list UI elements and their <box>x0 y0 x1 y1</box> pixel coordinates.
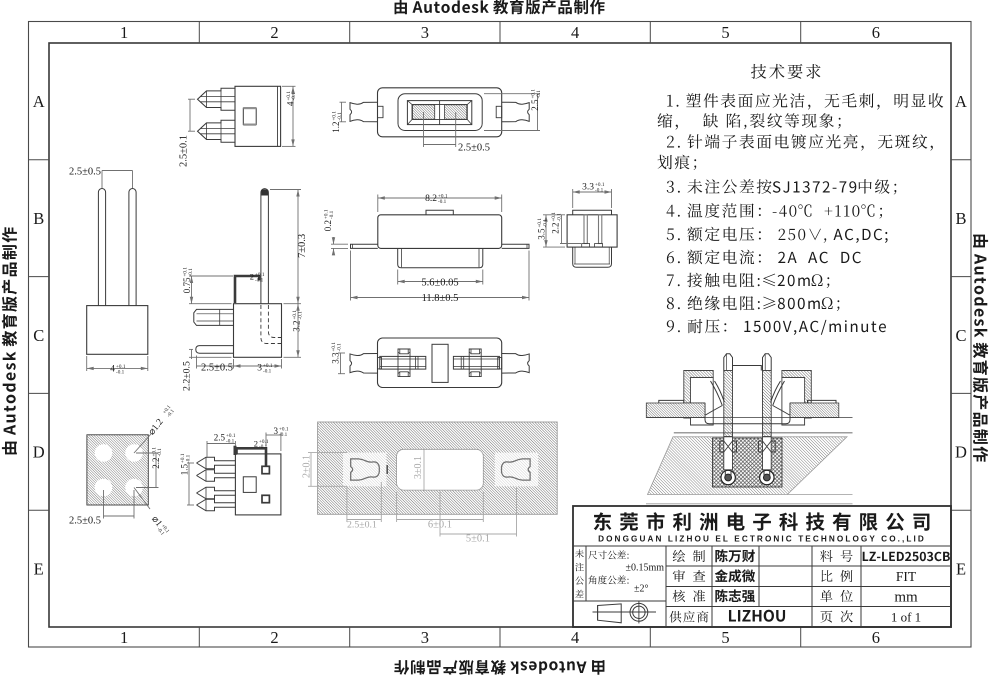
svg-text:B: B <box>955 209 966 228</box>
svg-text:1: 1 <box>120 23 128 42</box>
svg-text:mm: mm <box>894 590 918 606</box>
svg-text:3.2: 3.2 <box>292 321 302 332</box>
svg-text:4: 4 <box>285 101 295 106</box>
svg-text:-0.1: -0.1 <box>297 311 303 320</box>
svg-text:3: 3 <box>274 426 279 436</box>
svg-text:B: B <box>33 209 44 228</box>
svg-text:2±0.1: 2±0.1 <box>302 455 313 478</box>
svg-text:-0.1: -0.1 <box>556 213 562 222</box>
svg-text:1.5: 1.5 <box>180 464 190 476</box>
svg-text:DONGGUAN LIZHOU EL ECTRONIC TE: DONGGUAN LIZHOU EL ECTRONIC TECHNOLOGY C… <box>598 535 926 544</box>
svg-text:-0.1: -0.1 <box>291 92 297 101</box>
svg-text:1: 1 <box>120 628 128 647</box>
svg-text:3: 3 <box>421 23 429 42</box>
svg-text:-0.1: -0.1 <box>595 187 604 193</box>
svg-text:2.5±0.5: 2.5±0.5 <box>201 363 233 374</box>
svg-text:-0.1: -0.1 <box>542 219 548 228</box>
svg-text:2.5±0.5: 2.5±0.5 <box>458 143 490 154</box>
svg-text:5: 5 <box>721 628 729 647</box>
svg-text:D: D <box>33 443 45 462</box>
svg-text:A: A <box>955 92 967 111</box>
svg-text:-0.1: -0.1 <box>329 210 335 219</box>
svg-text:2.5±0.1: 2.5±0.1 <box>347 520 377 531</box>
svg-text:2.2: 2.2 <box>151 458 161 469</box>
svg-text:-0.1: -0.1 <box>116 369 125 375</box>
svg-text:-0.1: -0.1 <box>536 90 542 99</box>
svg-text:3: 3 <box>257 364 262 374</box>
svg-text:-0.1: -0.1 <box>255 277 264 283</box>
svg-text:2.5±0.5: 2.5±0.5 <box>69 167 101 178</box>
svg-text:7±0.3: 7±0.3 <box>297 234 308 258</box>
svg-text:2: 2 <box>270 23 278 42</box>
svg-text:6: 6 <box>872 628 880 647</box>
svg-text:2.2: 2.2 <box>551 223 561 234</box>
svg-text:A: A <box>33 92 45 111</box>
svg-text:3±0.1: 3±0.1 <box>413 456 424 479</box>
svg-text:±2°: ±2° <box>634 584 649 595</box>
svg-text:±0.15mm: ±0.15mm <box>625 563 664 574</box>
svg-text:8.2: 8.2 <box>425 194 437 204</box>
svg-text:3: 3 <box>421 628 429 647</box>
svg-text:E: E <box>956 559 966 578</box>
svg-text:2.5±0.1: 2.5±0.1 <box>179 135 190 167</box>
svg-text:C: C <box>33 326 44 345</box>
svg-text:3.3: 3.3 <box>582 183 594 193</box>
svg-text:6: 6 <box>872 23 880 42</box>
svg-text:3.5: 3.5 <box>537 228 547 240</box>
svg-text:3.3: 3.3 <box>331 352 341 364</box>
svg-text:-0.1: -0.1 <box>279 432 288 438</box>
svg-text:0.75: 0.75 <box>182 277 192 293</box>
svg-text:5.6±0.05: 5.6±0.05 <box>421 278 458 289</box>
svg-text:-0.1: -0.1 <box>263 368 272 374</box>
svg-text:2.5: 2.5 <box>530 99 540 111</box>
svg-text:FIT: FIT <box>896 569 917 584</box>
svg-text:4: 4 <box>571 628 579 647</box>
svg-text:5±0.1: 5±0.1 <box>466 534 490 545</box>
svg-text:1 of 1: 1 of 1 <box>891 610 921 625</box>
svg-text:1.2: 1.2 <box>331 122 341 133</box>
svg-text:-0.1: -0.1 <box>226 438 235 444</box>
svg-text:2.5: 2.5 <box>214 433 226 443</box>
svg-text:-0.1: -0.1 <box>336 343 342 352</box>
svg-text:-0.1: -0.1 <box>157 448 163 457</box>
svg-text:-0.1: -0.1 <box>337 112 343 121</box>
svg-text:2: 2 <box>250 272 254 282</box>
svg-text:2: 2 <box>270 628 278 647</box>
svg-text:2: 2 <box>254 438 258 448</box>
svg-text:E: E <box>34 559 44 578</box>
svg-text:C: C <box>955 326 966 345</box>
svg-text:0.2: 0.2 <box>323 220 333 231</box>
svg-text:4: 4 <box>571 23 579 42</box>
svg-text:2.2±0.5: 2.2±0.5 <box>182 361 193 391</box>
svg-text:D: D <box>955 443 967 462</box>
svg-text:11.8±0.5: 11.8±0.5 <box>422 293 459 304</box>
svg-text:-0.1: -0.1 <box>185 454 191 463</box>
svg-text:-0.1: -0.1 <box>259 444 268 450</box>
svg-text:-0.1: -0.1 <box>188 268 194 277</box>
svg-text:-0.1: -0.1 <box>438 199 447 205</box>
svg-text:4: 4 <box>110 365 115 375</box>
svg-text:5: 5 <box>721 23 729 42</box>
svg-text:2.5±0.5: 2.5±0.5 <box>69 516 101 527</box>
